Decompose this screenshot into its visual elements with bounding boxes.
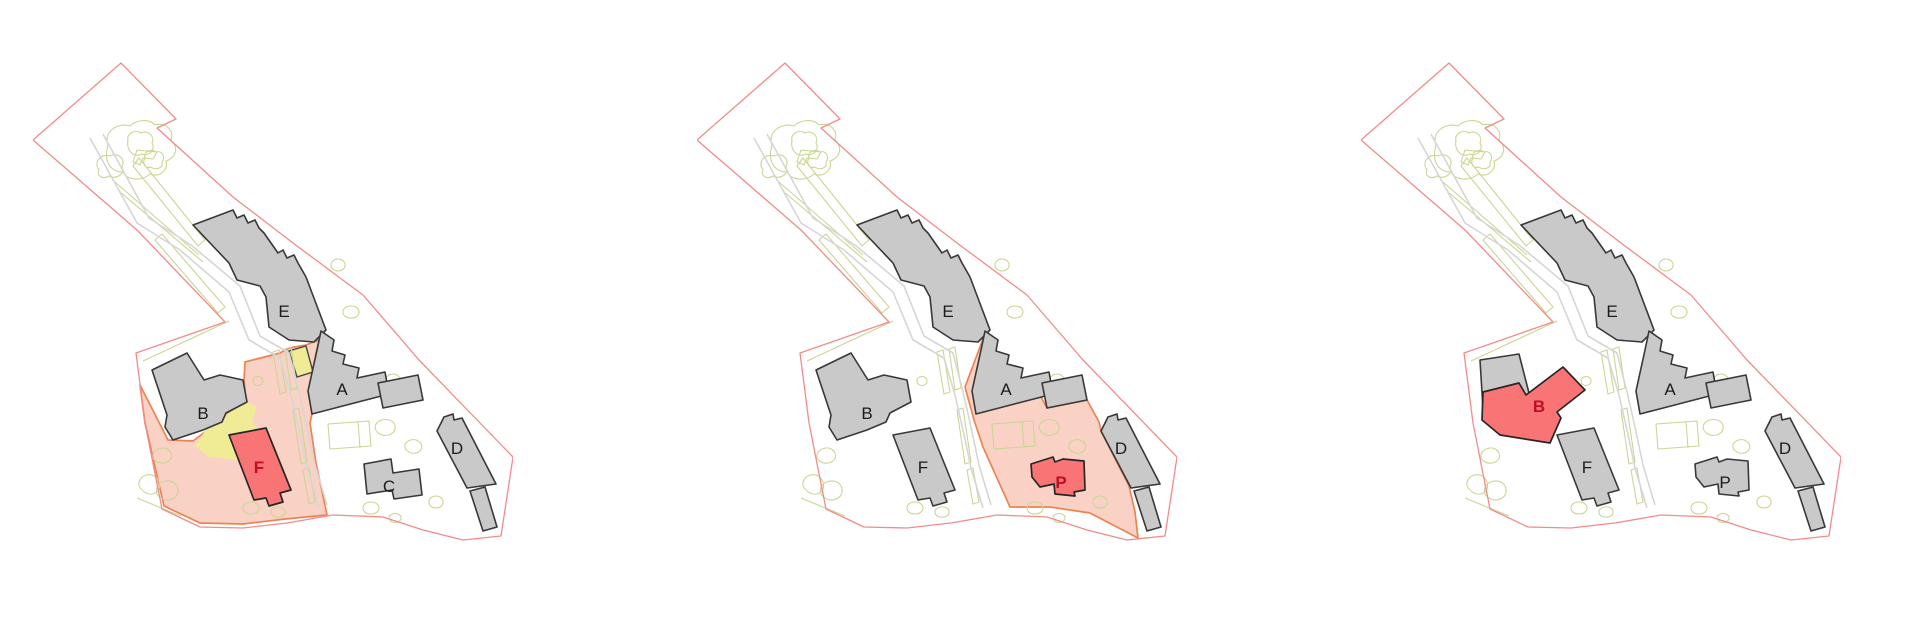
landscape-outline (1443, 182, 1527, 255)
building-label-E: E (942, 302, 953, 321)
building-E (857, 210, 990, 342)
landscape-outline (405, 440, 422, 454)
landscape-outline (907, 502, 923, 514)
site-plan-panel-1: EBACDF (33, 50, 513, 550)
landscape-outline (917, 377, 927, 386)
building-label-D: D (1115, 439, 1127, 458)
landscape-outline (144, 150, 164, 168)
building-label-A: A (1000, 380, 1012, 399)
landscape-outline (1733, 440, 1750, 454)
landscape-outline (1472, 150, 1492, 168)
landscape-outline (935, 507, 949, 518)
building-label-P: P (1055, 473, 1066, 492)
building-label-E: E (1606, 302, 1617, 321)
site-plan-middle-svg: EBAFDP (697, 50, 1177, 550)
building-label-F: F (918, 458, 928, 477)
landscape-outline (1659, 259, 1673, 271)
building-E (1521, 210, 1654, 342)
building-label-A: A (336, 380, 348, 399)
site-plan-left-svg: EBACDF (33, 50, 513, 550)
landscape-outline (1691, 502, 1707, 514)
landscape-outline (1757, 496, 1771, 508)
landscape-outline (1703, 419, 1723, 435)
landscape-outline (784, 192, 867, 262)
landscape-outline (1671, 306, 1687, 318)
building-D_stub (1134, 487, 1161, 531)
landscape-outline (1571, 502, 1587, 514)
building-label-P: P (1719, 473, 1730, 492)
site-plan-triptych: EBACDF EBAFDP EAFDPB (0, 0, 1920, 640)
landscape-outline (1656, 421, 1699, 449)
building-label-F: F (254, 458, 264, 477)
landscape-outline (808, 150, 828, 168)
landscape-outline (343, 306, 359, 318)
building-A_wing (308, 331, 389, 414)
landscape-outline (1581, 377, 1591, 386)
building-D (1765, 414, 1824, 488)
landscape-outline (1599, 507, 1613, 518)
building-label-B: B (197, 404, 208, 423)
building-label-D: D (451, 439, 463, 458)
landscape-outline (817, 448, 836, 463)
landscape-outline (120, 192, 203, 262)
landscape-outline (375, 419, 395, 435)
landscape-outline (1434, 121, 1503, 180)
landscape-outline (1686, 422, 1688, 448)
building-E (193, 210, 326, 342)
landscape-outline (779, 182, 863, 255)
landscape-outline (429, 496, 443, 508)
building-label-B: B (1533, 397, 1545, 416)
landscape-outline (331, 259, 345, 271)
building-label-C: C (383, 477, 395, 496)
building-A_wing (1636, 331, 1717, 414)
site-plan-right-svg: EAFDPB (1361, 50, 1841, 550)
building-B_orig (816, 353, 911, 440)
building-D_stub (470, 487, 497, 531)
landscape-outline (995, 259, 1009, 271)
landscape-outline (363, 502, 379, 514)
landscape-outline (1007, 306, 1023, 318)
building-label-F: F (1582, 458, 1592, 477)
landscape-outline (1481, 448, 1500, 463)
building-label-A: A (1664, 380, 1676, 399)
landscape-outline (1465, 498, 1509, 516)
landscape-outline (358, 422, 360, 448)
landscape-outline (801, 498, 845, 516)
building-label-B: B (861, 404, 872, 423)
landscape-outline (770, 121, 839, 180)
building-label-D: D (1779, 439, 1791, 458)
building-D (437, 414, 496, 488)
landscape-outline (106, 121, 175, 180)
landscape-outline (1448, 192, 1531, 262)
building-label-E: E (278, 302, 289, 321)
landscape-outline (328, 421, 371, 449)
building-D_stub (1798, 487, 1825, 531)
buildings-existing (1480, 210, 1825, 531)
site-plan-panel-3: EAFDPB (1361, 50, 1841, 550)
site-plan-panel-2: EBAFDP (697, 50, 1177, 550)
landscape-outline (115, 182, 199, 255)
